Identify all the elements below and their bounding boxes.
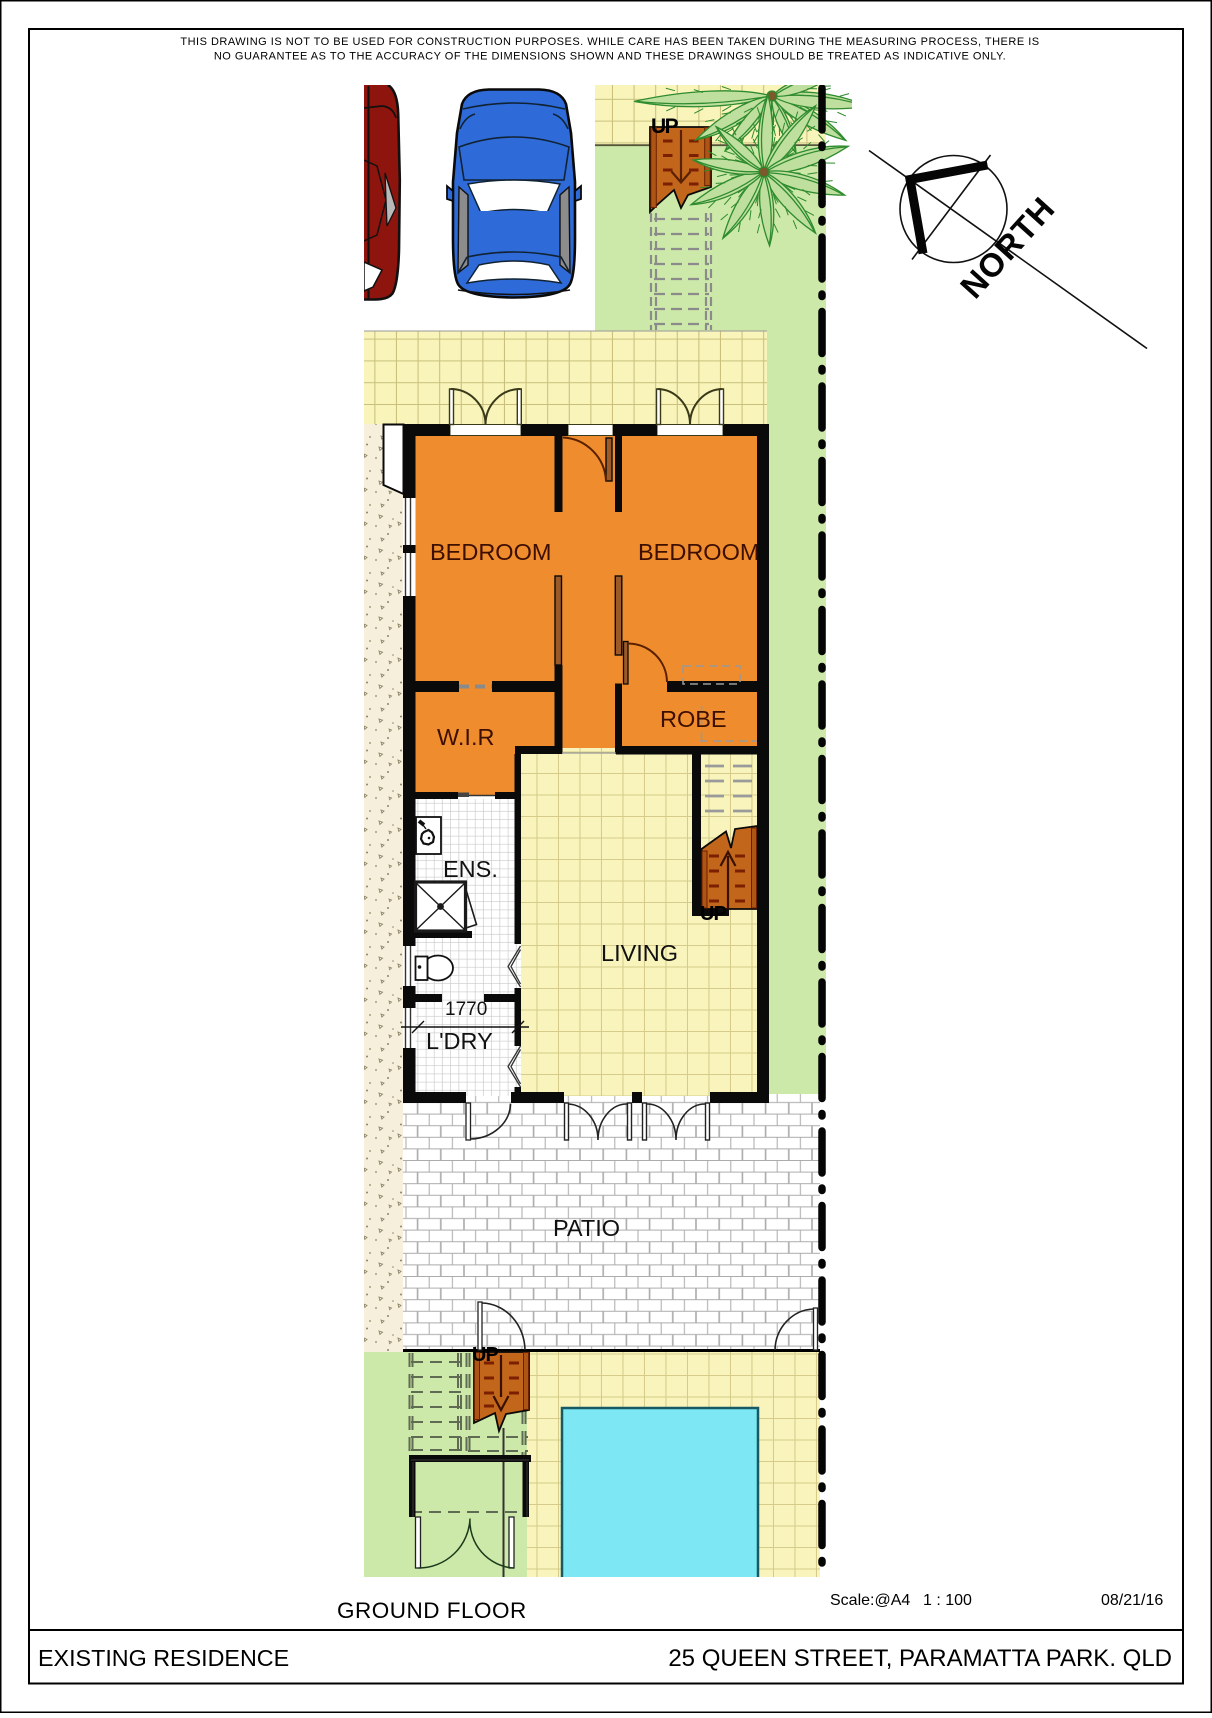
svg-text:Scale:@A4: Scale:@A4: [830, 1592, 910, 1609]
svg-text:THIS DRAWING IS NOT TO BE USED: THIS DRAWING IS NOT TO BE USED FOR CONST…: [180, 36, 1039, 48]
svg-text:UP: UP: [651, 115, 679, 138]
svg-text:NO GUARANTEE AS TO THE ACCURAC: NO GUARANTEE AS TO THE ACCURACY OF THE D…: [214, 51, 1006, 63]
svg-text:W.I.R: W.I.R: [437, 724, 494, 750]
svg-text:GROUND FLOOR: GROUND FLOOR: [337, 1598, 527, 1623]
svg-text:UP: UP: [700, 903, 726, 925]
svg-text:ENS.: ENS.: [443, 856, 498, 882]
svg-text:BEDROOM: BEDROOM: [430, 539, 551, 565]
svg-text:ROBE: ROBE: [660, 706, 727, 732]
svg-text:L'DRY: L'DRY: [426, 1028, 493, 1054]
svg-text:LIVING: LIVING: [601, 940, 678, 966]
svg-text:1 : 100: 1 : 100: [923, 1592, 972, 1609]
svg-text:UP: UP: [472, 1344, 498, 1366]
svg-text:EXISTING RESIDENCE: EXISTING RESIDENCE: [38, 1645, 289, 1671]
svg-text:1770: 1770: [445, 999, 487, 1020]
svg-text:PATIO: PATIO: [553, 1215, 620, 1241]
svg-text:25 QUEEN STREET, PARAMATTA PAR: 25 QUEEN STREET, PARAMATTA PARK. QLD: [668, 1645, 1172, 1672]
svg-text:08/21/16: 08/21/16: [1101, 1592, 1163, 1609]
svg-text:BEDROOM: BEDROOM: [638, 539, 759, 565]
